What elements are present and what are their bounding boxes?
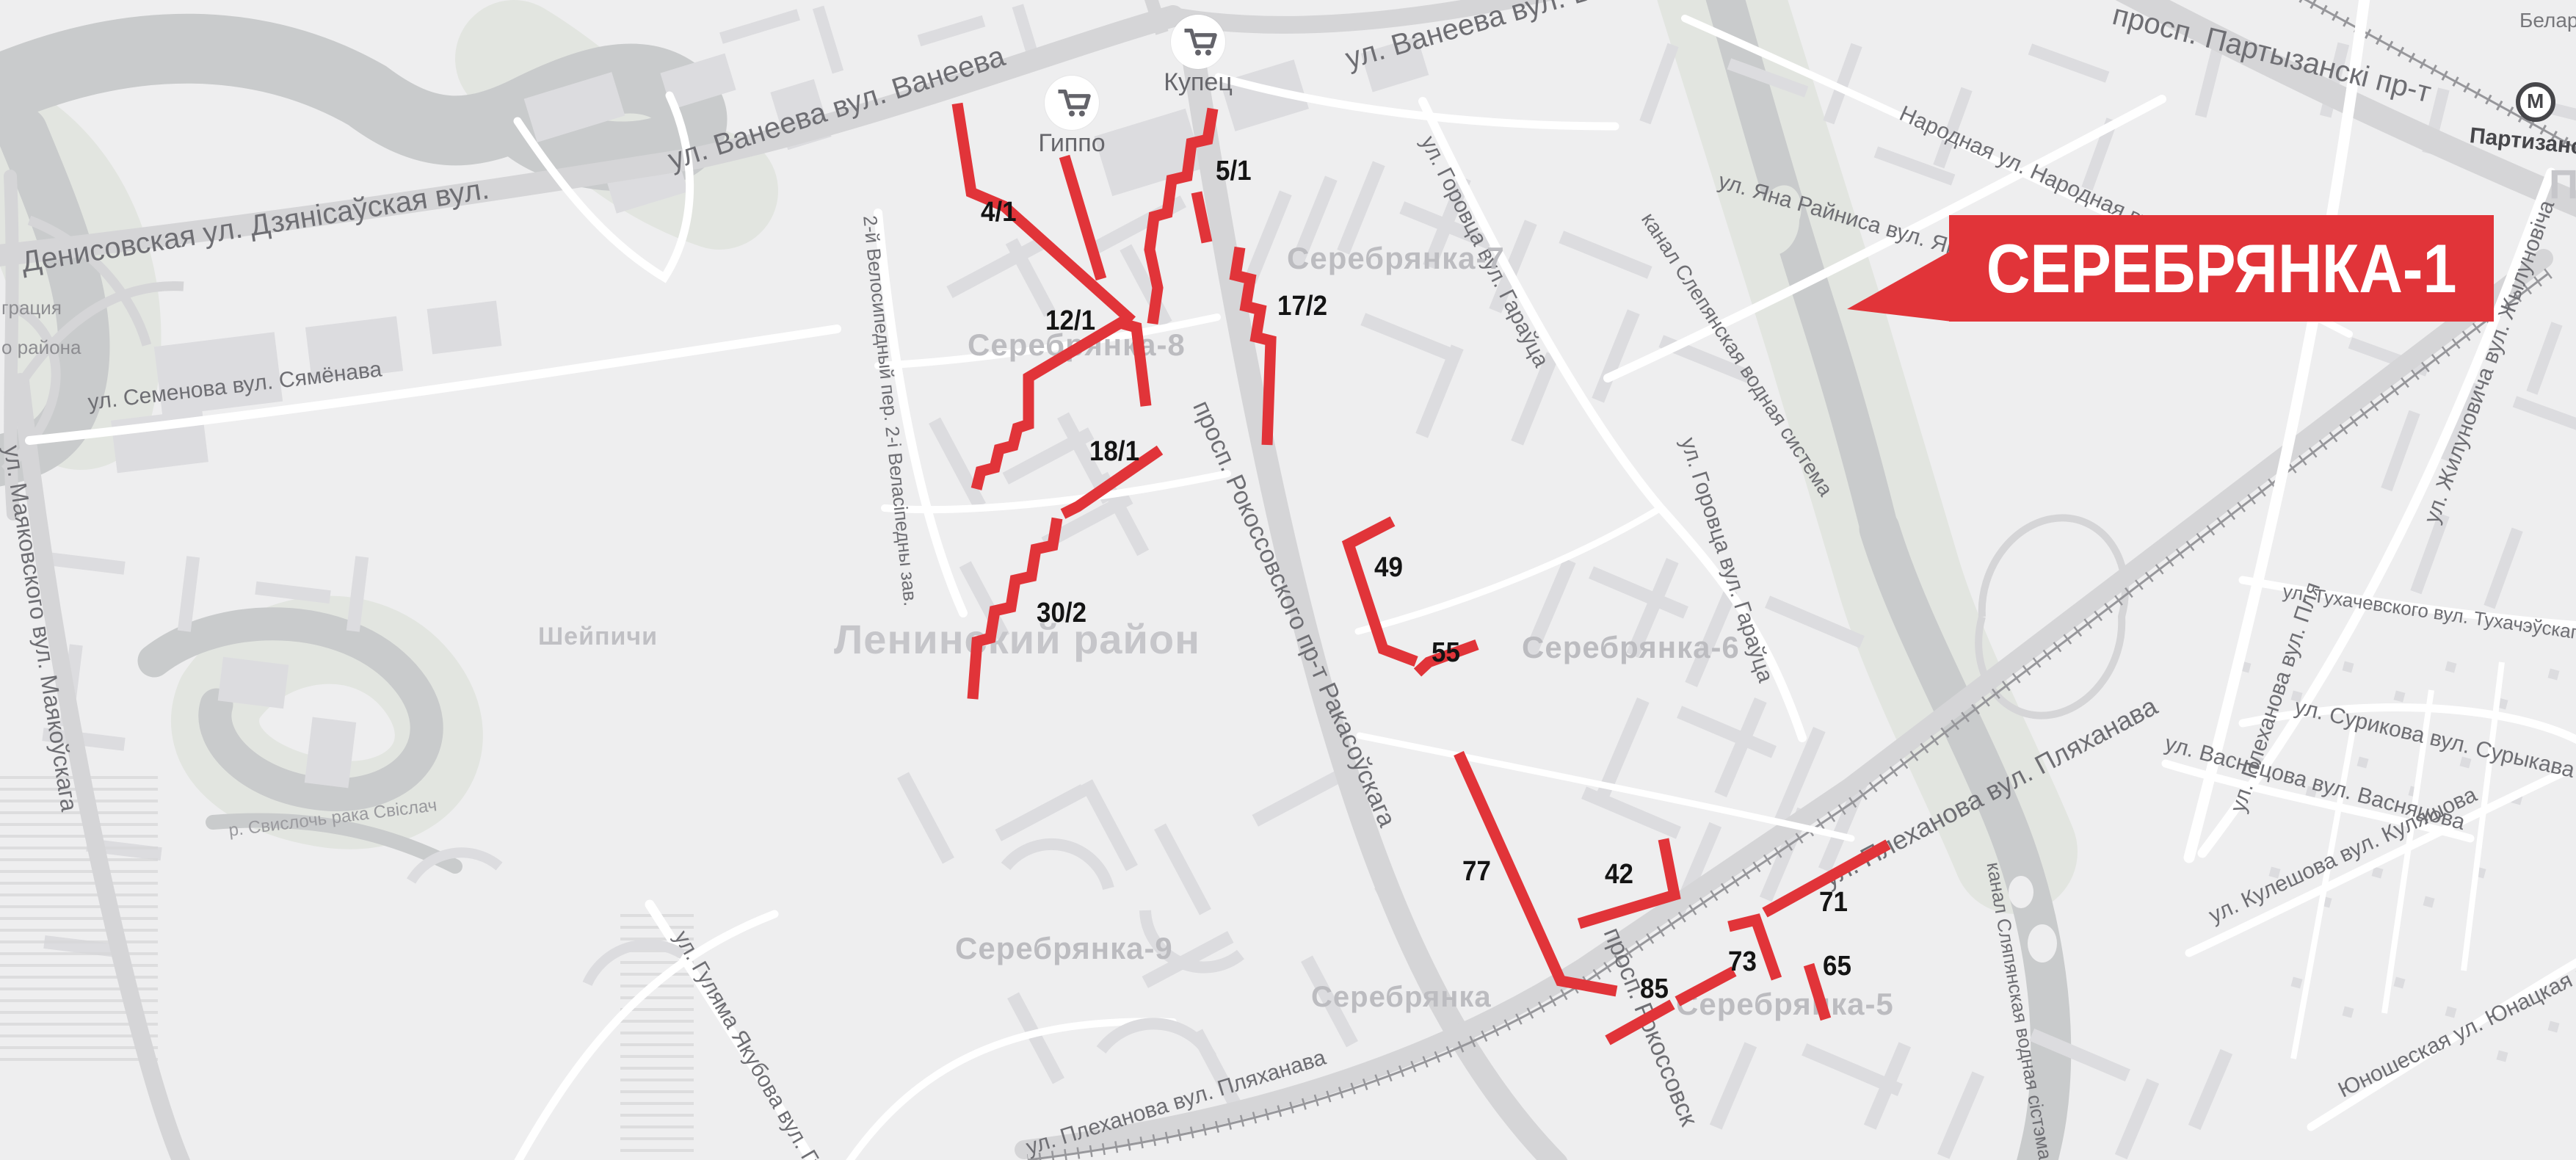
building-number-label: 30/2 <box>1037 598 1086 629</box>
district-callout-banner: СЕРЕБРЯНКА-1 <box>1949 215 2494 322</box>
building-number-label: 77 <box>1462 856 1491 888</box>
building-number-label: 55 <box>1432 637 1460 669</box>
building-number-label: 65 <box>1823 951 1851 982</box>
shopping-cart-icon <box>1045 76 1099 130</box>
building-number-label: 5/1 <box>1216 156 1252 187</box>
district-callout-label: СЕРЕБРЯНКА-1 <box>1987 229 2457 308</box>
shopping-cart-icon <box>1171 15 1225 69</box>
building-number-label: 71 <box>1819 887 1848 918</box>
poi-label: Гиппо <box>1038 129 1105 158</box>
building-number-label: 42 <box>1605 859 1633 891</box>
poi-label: Купец <box>1164 68 1233 97</box>
building-number-label: 85 <box>1640 974 1669 1005</box>
building-number-label: 12/1 <box>1045 305 1095 337</box>
building-number-label: 18/1 <box>1089 436 1139 468</box>
map-canvas[interactable]: ул. Ванеева вул. Ванееваул. Ванеева вул.… <box>0 0 2576 1160</box>
metro-m-glyph: М <box>2527 90 2544 113</box>
map-overlay-layer: 4/15/112/117/218/130/24955774271738565 Г… <box>0 0 2576 1160</box>
building-number-label: 17/2 <box>1277 291 1327 322</box>
building-number-label: 73 <box>1728 946 1757 978</box>
building-number-label: 49 <box>1374 552 1403 584</box>
building-number-label: 4/1 <box>981 197 1017 228</box>
